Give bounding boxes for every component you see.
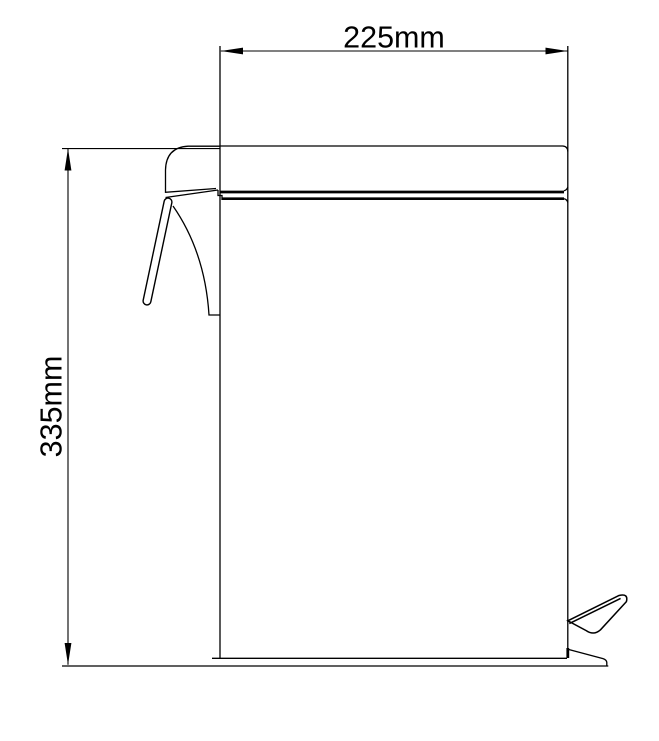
- hinge-housing: [166, 146, 221, 192]
- lid-hinge-assembly: [147, 146, 568, 315]
- pedal: [568, 595, 627, 666]
- height-dimension-label: 335mm: [35, 356, 69, 458]
- lid-swing-arc: [173, 206, 220, 315]
- pedal-plate: [568, 595, 627, 633]
- dim-arrow-right-icon: [546, 48, 568, 55]
- width-dimension: 225mm: [221, 21, 568, 55]
- drawing-canvas: 225mm 335mm: [0, 0, 659, 741]
- dim-arrow-up-icon: [65, 149, 72, 171]
- pedal-base-bracket: [568, 649, 607, 666]
- lid-top-edge: [220, 146, 568, 152]
- hinge-lever-face: [147, 202, 168, 301]
- height-dimension: 335mm: [35, 149, 221, 665]
- width-dimension-label: 225mm: [343, 21, 445, 55]
- technical-drawing: 225mm 335mm: [0, 0, 659, 741]
- dim-arrow-down-icon: [65, 643, 72, 665]
- dim-arrow-left-icon: [221, 48, 243, 55]
- bin-body: [62, 46, 608, 666]
